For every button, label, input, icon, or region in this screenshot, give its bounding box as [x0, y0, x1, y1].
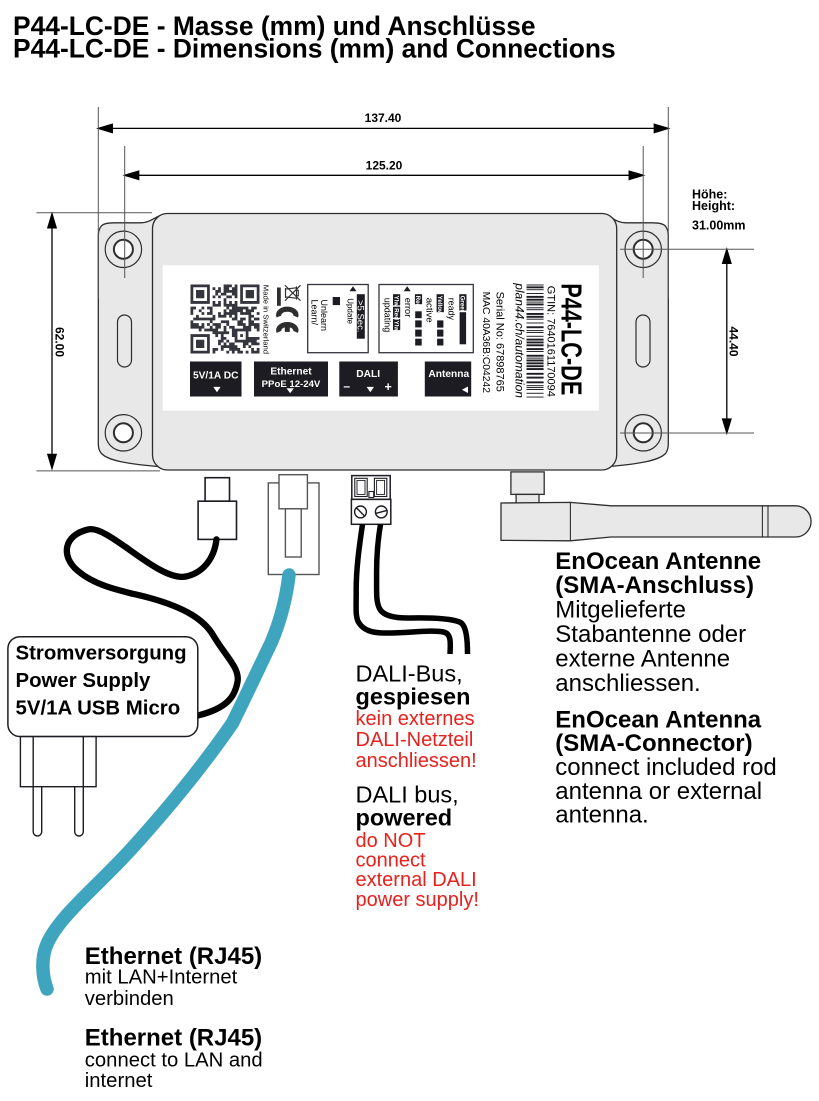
- svg-text:active: active: [423, 298, 434, 323]
- svg-text:+: +: [385, 380, 392, 394]
- svg-text:connect to LAN and: connect to LAN and: [85, 1049, 263, 1071]
- svg-text:62.00: 62.00: [53, 327, 67, 357]
- svg-text:P44-LC-DE - Dimensions (mm) an: P44-LC-DE - Dimensions (mm) and Connecti…: [13, 33, 616, 63]
- svg-text:MAC 40A36B:C04242: MAC 40A36B:C04242: [480, 292, 491, 394]
- svg-text:Red: Red: [392, 308, 399, 320]
- svg-text:internet: internet: [85, 1070, 153, 1092]
- svg-text:external DALI: external DALI: [356, 869, 477, 891]
- svg-text:Learn/: Learn/: [310, 300, 320, 326]
- svg-text:Stabantenne oder: Stabantenne oder: [555, 621, 746, 648]
- svg-text:Made in Switzerland: Made in Switzerland: [262, 285, 271, 354]
- svg-text:Red: Red: [414, 296, 421, 308]
- svg-text:5V/1A USB Micro: 5V/1A USB Micro: [16, 698, 181, 720]
- svg-text:137.40: 137.40: [365, 111, 402, 125]
- svg-text:Ethernet: Ethernet: [270, 367, 312, 378]
- svg-text:125.20: 125.20: [366, 159, 403, 173]
- svg-text:error: error: [403, 298, 413, 318]
- svg-text:power supply!: power supply!: [356, 889, 479, 911]
- svg-text:DALI: DALI: [356, 369, 380, 380]
- svg-text:verbinden: verbinden: [85, 988, 174, 1010]
- svg-text:externe Antenne: externe Antenne: [555, 646, 730, 673]
- svg-text:Unlearn: Unlearn: [319, 300, 329, 332]
- svg-text:Yellow: Yellow: [436, 296, 443, 315]
- svg-text:gespiesen: gespiesen: [356, 684, 471, 710]
- svg-text:Green: Green: [459, 296, 466, 314]
- svg-text:DALI-Bus,: DALI-Bus,: [356, 660, 463, 686]
- svg-text:anschliessen!: anschliessen!: [356, 750, 477, 772]
- svg-text:ready: ready: [447, 298, 457, 321]
- svg-text:powered: powered: [356, 805, 453, 831]
- svg-text:anschliessen.: anschliessen.: [555, 670, 700, 697]
- svg-text:do NOT: do NOT: [356, 830, 426, 852]
- svg-text:kein externes: kein externes: [356, 708, 475, 730]
- svg-text:GTIN: 7640161170094: GTIN: 7640161170094: [545, 286, 557, 397]
- svg-text:P44-LC-DE: P44-LC-DE: [555, 283, 587, 395]
- svg-text:–: –: [343, 379, 350, 393]
- svg-text:Height:: Height:: [692, 199, 735, 213]
- svg-text:44.40: 44.40: [727, 327, 741, 357]
- svg-text:DALI-Netzteil: DALI-Netzteil: [356, 729, 474, 751]
- svg-text:updating: updating: [382, 298, 392, 333]
- svg-text:Power Supply: Power Supply: [16, 670, 151, 692]
- svg-text:Stromversorgung: Stromversorgung: [16, 643, 187, 665]
- svg-text:(SMA-Anschluss): (SMA-Anschluss): [555, 572, 754, 599]
- svg-text:Ylw: Ylw: [392, 296, 399, 307]
- svg-text:Ethernet (RJ45): Ethernet (RJ45): [85, 1024, 262, 1051]
- svg-text:Ylw: Ylw: [392, 321, 399, 332]
- svg-text:>5 Sec.: >5 Sec.: [355, 300, 366, 332]
- svg-text:plan44.ch/automation: plan44.ch/automation: [512, 282, 526, 398]
- svg-text:Serial No: 67898765: Serial No: 67898765: [494, 292, 506, 392]
- svg-text:Update: Update: [346, 298, 355, 324]
- svg-text:Mitgelieferte: Mitgelieferte: [555, 597, 686, 624]
- svg-text:mit LAN+Internet: mit LAN+Internet: [85, 967, 238, 989]
- svg-text:31.00mm: 31.00mm: [692, 218, 746, 232]
- svg-text:Antenna: Antenna: [428, 369, 469, 380]
- svg-text:connect: connect: [356, 850, 426, 872]
- svg-text:antenna.: antenna.: [555, 802, 648, 829]
- svg-text:PPoE 12-24V: PPoE 12-24V: [262, 379, 321, 390]
- svg-text:5V/1A DC: 5V/1A DC: [193, 370, 239, 381]
- svg-text:DALI bus,: DALI bus,: [356, 782, 459, 808]
